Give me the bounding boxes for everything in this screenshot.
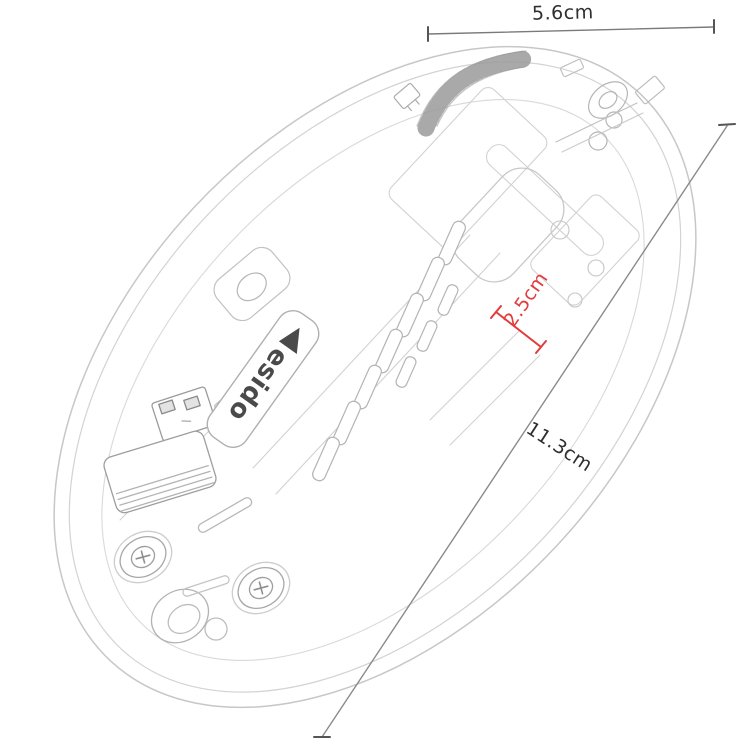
dimension-side-length: 11.3cm — [314, 124, 735, 737]
dimension-label-height: 2.5cm — [499, 268, 552, 331]
product-dimension-diagram: esido 5.6cm 11.3cm 2.5cm — [0, 0, 750, 750]
usb-cap — [102, 429, 218, 515]
usb-receiver — [102, 386, 218, 515]
dimension-tick — [719, 124, 735, 125]
scroll-wheel — [417, 51, 526, 128]
screw-left — [105, 521, 181, 593]
dimension-top-width: 5.6cm — [428, 1, 714, 41]
dimension-line — [428, 27, 714, 34]
sensor-post — [141, 496, 253, 654]
screw-right — [223, 552, 299, 624]
phillips-cross-icon — [253, 580, 270, 595]
dimension-tick — [491, 306, 501, 318]
mouse-line-art: esido — [0, 0, 750, 750]
dimension-label-top-width: 5.6cm — [532, 1, 594, 25]
encoder-mechanism — [556, 59, 665, 152]
vent-slots — [311, 219, 468, 482]
brand-plate: esido — [201, 304, 325, 453]
dimension-tick — [536, 341, 546, 353]
micro-switch — [393, 83, 424, 114]
diagram-canvas: esido 5.6cm 11.3cm 2.5cm — [0, 0, 750, 750]
phillips-cross-icon — [135, 549, 152, 564]
